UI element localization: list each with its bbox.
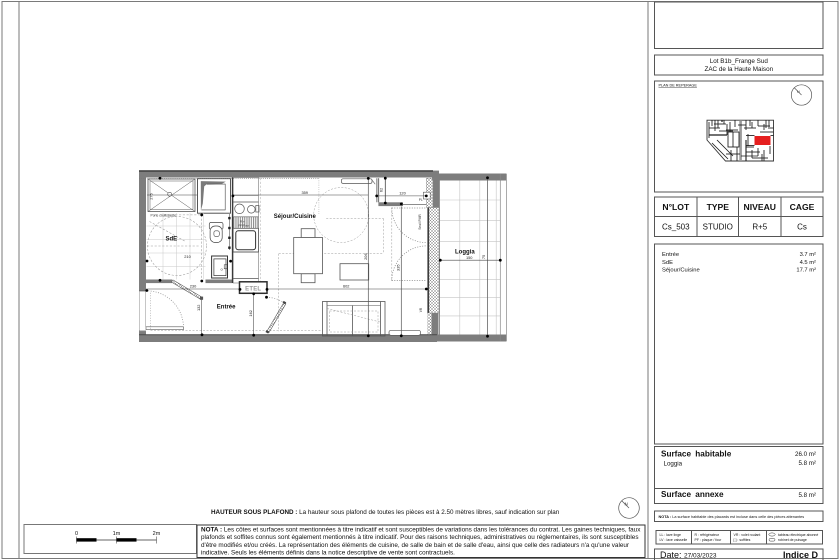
- svg-text:HAUTEUR SOUS PLAFOND : La haut: HAUTEUR SOUS PLAFOND : La hauteur sous p…: [211, 509, 560, 516]
- svg-text:ZAC de la Haute Maison: ZAC de la Haute Maison: [704, 66, 773, 73]
- svg-text:plafonds et soffites connus so: plafonds et soffites connus sont égaleme…: [201, 534, 639, 541]
- svg-text:tableau électrique abonné: tableau électrique abonné: [778, 533, 818, 537]
- svg-text:210: 210: [184, 254, 191, 259]
- svg-text:Surface annexe: Surface annexe: [661, 490, 724, 499]
- svg-text:d'être modifiés et/ou créés. L: d'être modifiés et/ou créés. La représen…: [201, 542, 629, 549]
- svg-text:LV : lave vaisselle: LV : lave vaisselle: [660, 538, 688, 542]
- svg-text:Cs_503: Cs_503: [662, 223, 690, 232]
- svg-text:1m: 1m: [113, 531, 121, 537]
- svg-text:indicative. Seuls les éléments: indicative. Seuls les éléments définis d…: [201, 549, 455, 556]
- svg-text:Date:: Date:: [660, 550, 682, 560]
- svg-text:275: 275: [149, 193, 154, 200]
- svg-text:NOTA : La surface habitable d: NOTA : La surface habitable des placards…: [659, 515, 805, 519]
- svg-text:PL: PL: [419, 198, 423, 202]
- svg-text:NOTA : Les côtes et surfaces s: NOTA : Les côtes et surfaces sont mentio…: [201, 527, 641, 534]
- svg-text:Lot B1b_Frange Sud: Lot B1b_Frange Sud: [710, 58, 769, 65]
- svg-text:Séjour/Cuisine: Séjour/Cuisine: [662, 268, 700, 274]
- svg-text:N°LOT: N°LOT: [662, 202, 690, 212]
- svg-text:N: N: [797, 89, 800, 94]
- svg-text:NIVEAU: NIVEAU: [744, 202, 776, 212]
- svg-text:602: 602: [343, 284, 350, 289]
- svg-text:Loggia: Loggia: [455, 250, 475, 256]
- svg-text:132: 132: [196, 305, 201, 312]
- svg-text:Entrée: Entrée: [662, 252, 679, 258]
- svg-text:4.5 m²: 4.5 m²: [800, 260, 816, 266]
- svg-text:Séjour/Cuisine: Séjour/Cuisine: [274, 214, 317, 220]
- svg-text:R : réfrigérateur: R : réfrigérateur: [695, 533, 720, 537]
- svg-text:5.8 m²: 5.8 m²: [798, 492, 816, 499]
- svg-text:62: 62: [379, 188, 384, 192]
- svg-text:VR : volet roulant: VR : volet roulant: [734, 533, 761, 537]
- svg-text:230: 230: [190, 284, 197, 289]
- svg-text:359: 359: [301, 190, 308, 195]
- svg-text:Cs: Cs: [797, 223, 807, 232]
- svg-text:Indice D: Indice D: [783, 550, 819, 560]
- svg-text:VR: VR: [419, 307, 423, 312]
- svg-text:LL : lave linge: LL : lave linge: [660, 533, 682, 537]
- svg-text:ETEL: ETEL: [245, 286, 261, 292]
- svg-text:STUDIO: STUDIO: [703, 223, 733, 232]
- svg-text:robinet de puisage: robinet de puisage: [778, 538, 807, 542]
- svg-text:2m: 2m: [153, 531, 161, 537]
- svg-text:5.8 m²: 5.8 m²: [798, 460, 816, 467]
- svg-text:[ ] : soffites: [ ] : soffites: [734, 538, 751, 542]
- svg-text:Entrée: Entrée: [217, 304, 236, 310]
- svg-text:26.0 m²: 26.0 m²: [795, 451, 816, 458]
- svg-text:Porte coulissante: Porte coulissante: [151, 214, 176, 218]
- svg-text:162: 162: [248, 310, 253, 317]
- svg-text:PLAN DE REPERAGE: PLAN DE REPERAGE: [659, 84, 698, 88]
- svg-text:TYPE: TYPE: [707, 202, 730, 212]
- svg-text:335: 335: [396, 264, 401, 271]
- svg-text:Surface habitable: Surface habitable: [661, 450, 732, 459]
- svg-text:120: 120: [399, 191, 406, 196]
- svg-text:PF : plaque / four: PF : plaque / four: [695, 538, 723, 542]
- svg-text:o: o: [221, 267, 224, 272]
- svg-text:17.7 m²: 17.7 m²: [796, 268, 816, 274]
- svg-text:Loggia: Loggia: [664, 460, 683, 467]
- svg-text:Seuil PMR: Seuil PMR: [418, 214, 422, 230]
- svg-text:SdE: SdE: [166, 237, 178, 243]
- svg-text:3.7 m²: 3.7 m²: [800, 252, 816, 258]
- svg-text:SdE: SdE: [662, 260, 673, 266]
- svg-text:0: 0: [75, 531, 78, 537]
- svg-text:PF/Four: PF/Four: [239, 223, 250, 227]
- svg-text:206: 206: [363, 253, 368, 260]
- svg-text:N: N: [625, 502, 628, 507]
- svg-text:75: 75: [481, 255, 486, 259]
- svg-text:CAGE: CAGE: [790, 202, 815, 212]
- svg-text:27/03/2023: 27/03/2023: [684, 553, 717, 560]
- svg-text:R+5: R+5: [752, 223, 767, 232]
